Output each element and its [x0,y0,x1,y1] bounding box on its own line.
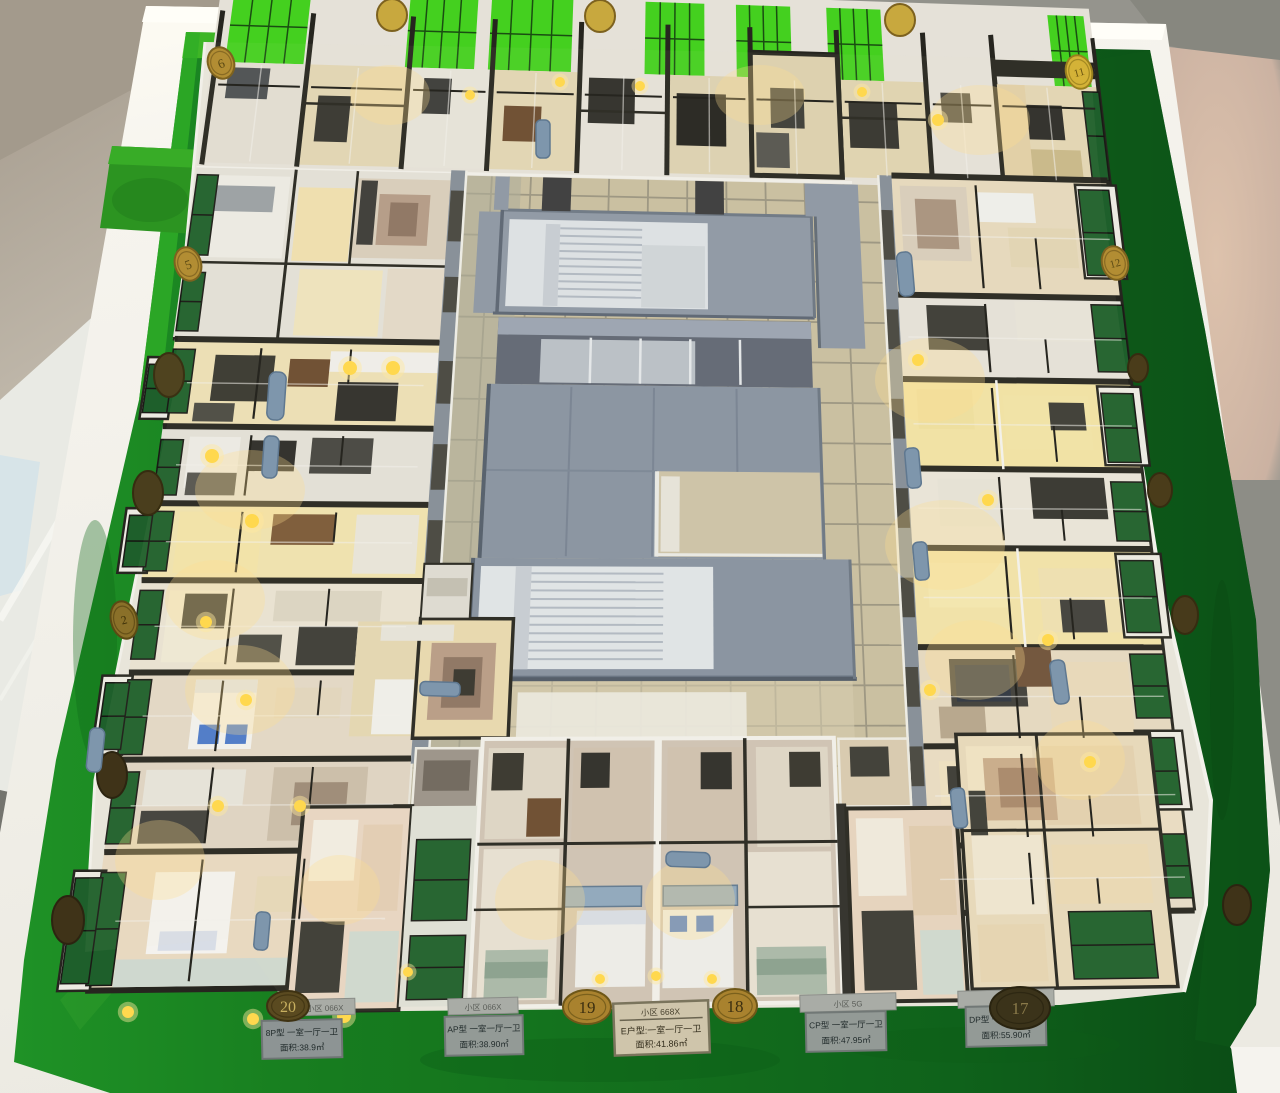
svg-text:面积:38.9㎡: 面积:38.9㎡ [280,1042,325,1053]
svg-text:面积:38.90㎡: 面积:38.90㎡ [460,1039,510,1050]
svg-text:CP型 一室一厅一卫: CP型 一室一厅一卫 [809,1019,883,1031]
svg-text:面积:41.86㎡: 面积:41.86㎡ [635,1037,687,1050]
svg-text:AP型 一室一厅一卫: AP型 一室一厅一卫 [447,1023,521,1035]
svg-text:8P型 一室一厅一卫: 8P型 一室一厅一卫 [266,1026,339,1038]
svg-text:小区 5G: 小区 5G [833,999,862,1009]
svg-text:小区 066X: 小区 066X [464,1003,502,1013]
svg-text:面积:55.90㎡: 面积:55.90㎡ [982,1029,1032,1040]
svg-text:20: 20 [280,999,296,1016]
svg-text:18: 18 [727,997,744,1016]
svg-text:小区 066X: 小区 066X [306,1004,344,1014]
svg-text:17: 17 [1012,999,1030,1018]
svg-text:面积:47.95㎡: 面积:47.95㎡ [822,1035,872,1046]
svg-text:小区 668X: 小区 668X [641,1006,681,1017]
svg-text:19: 19 [579,998,596,1017]
